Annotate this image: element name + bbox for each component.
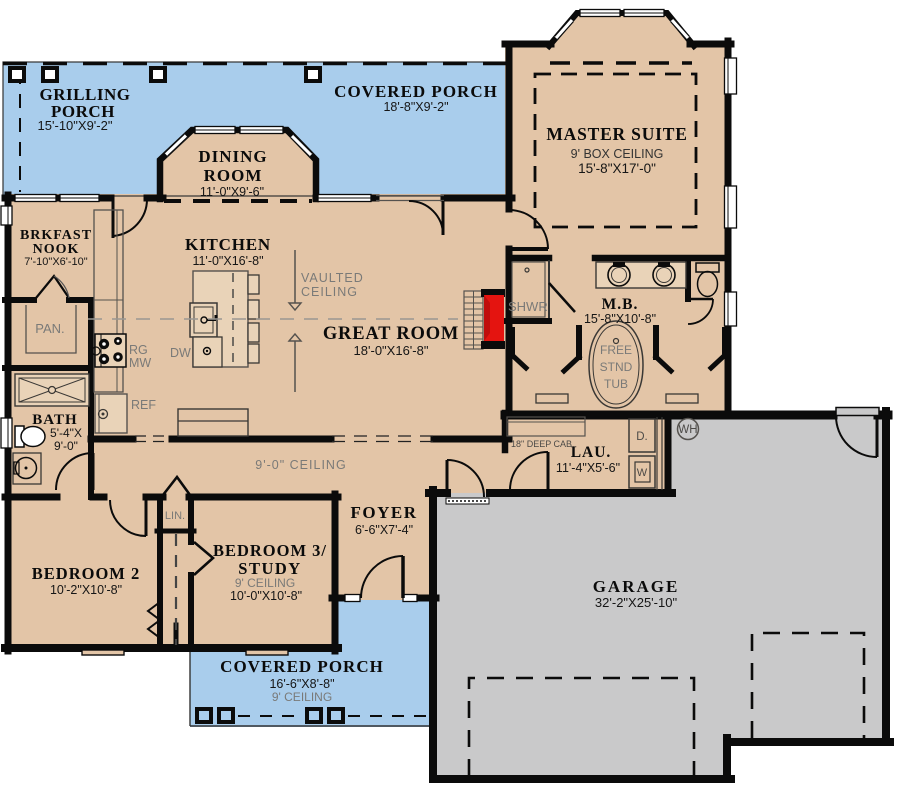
svg-text:18'-8"X9'-2": 18'-8"X9'-2" xyxy=(383,100,448,114)
svg-text:TUB: TUB xyxy=(604,377,628,391)
svg-text:9' CEILING: 9' CEILING xyxy=(235,576,295,590)
svg-text:MASTER SUITE: MASTER SUITE xyxy=(546,124,687,144)
svg-text:9'-0": 9'-0" xyxy=(54,439,78,453)
svg-text:RG: RG xyxy=(129,343,148,357)
svg-text:9' BOX CEILING: 9' BOX CEILING xyxy=(571,147,664,161)
svg-text:GREAT ROOM: GREAT ROOM xyxy=(323,324,459,344)
svg-text:W: W xyxy=(637,467,648,479)
svg-text:LIN.: LIN. xyxy=(165,510,185,522)
svg-text:15'-8"X10'-8": 15'-8"X10'-8" xyxy=(584,312,656,326)
svg-text:SHWR: SHWR xyxy=(508,299,548,314)
svg-text:BEDROOM 2: BEDROOM 2 xyxy=(32,564,140,583)
svg-text:VAULTED: VAULTED xyxy=(301,271,364,285)
svg-text:15'-10"X9'-2": 15'-10"X9'-2" xyxy=(38,118,113,133)
svg-text:STND: STND xyxy=(600,360,633,374)
svg-text:DINING: DINING xyxy=(198,147,267,166)
svg-text:18'-0"X16'-8": 18'-0"X16'-8" xyxy=(354,343,429,358)
svg-text:GARAGE: GARAGE xyxy=(593,577,680,596)
svg-text:BEDROOM 3/: BEDROOM 3/ xyxy=(213,541,327,560)
svg-text:10'-2"X10'-8": 10'-2"X10'-8" xyxy=(50,583,122,597)
svg-text:9'-0" CEILING: 9'-0" CEILING xyxy=(255,458,346,472)
svg-text:FREE: FREE xyxy=(600,343,632,357)
svg-text:REF: REF xyxy=(131,398,156,412)
svg-text:9' CEILING: 9' CEILING xyxy=(272,690,332,704)
svg-text:11'-4"X5'-6": 11'-4"X5'-6" xyxy=(556,461,620,475)
svg-text:16'-6"X8'-8": 16'-6"X8'-8" xyxy=(269,677,334,691)
svg-text:15'-8"X17'-0": 15'-8"X17'-0" xyxy=(578,161,656,176)
svg-text:7'-10"X6'-10": 7'-10"X6'-10" xyxy=(24,256,87,268)
svg-text:LAU.: LAU. xyxy=(571,444,612,461)
svg-text:BRKFAST: BRKFAST xyxy=(20,228,92,243)
svg-text:WH: WH xyxy=(678,424,697,436)
svg-text:D.: D. xyxy=(636,431,648,443)
svg-text:FOYER: FOYER xyxy=(351,503,418,522)
svg-text:M.B.: M.B. xyxy=(602,296,639,313)
svg-text:KITCHEN: KITCHEN xyxy=(185,235,271,254)
svg-text:PAN.: PAN. xyxy=(35,321,64,336)
svg-text:COVERED PORCH: COVERED PORCH xyxy=(220,657,384,676)
svg-text:11'-0"X16'-8": 11'-0"X16'-8" xyxy=(192,254,263,268)
svg-text:10'-0"X10'-8": 10'-0"X10'-8" xyxy=(230,589,302,603)
svg-text:COVERED PORCH: COVERED PORCH xyxy=(334,82,498,101)
svg-text:ROOM: ROOM xyxy=(204,166,263,185)
svg-text:DW: DW xyxy=(170,346,191,360)
svg-text:11'-0"X9'-6": 11'-0"X9'-6" xyxy=(200,185,264,199)
svg-text:MW: MW xyxy=(129,356,151,370)
svg-text:5'-4"X: 5'-4"X xyxy=(50,426,82,440)
svg-text:32'-2"X25'-10": 32'-2"X25'-10" xyxy=(595,595,678,610)
svg-text:NOOK: NOOK xyxy=(33,242,80,257)
svg-text:6'-6"X7'-4": 6'-6"X7'-4" xyxy=(355,523,413,537)
svg-text:18" DEEP CAB.: 18" DEEP CAB. xyxy=(511,439,575,449)
svg-text:CEILING: CEILING xyxy=(301,285,358,299)
